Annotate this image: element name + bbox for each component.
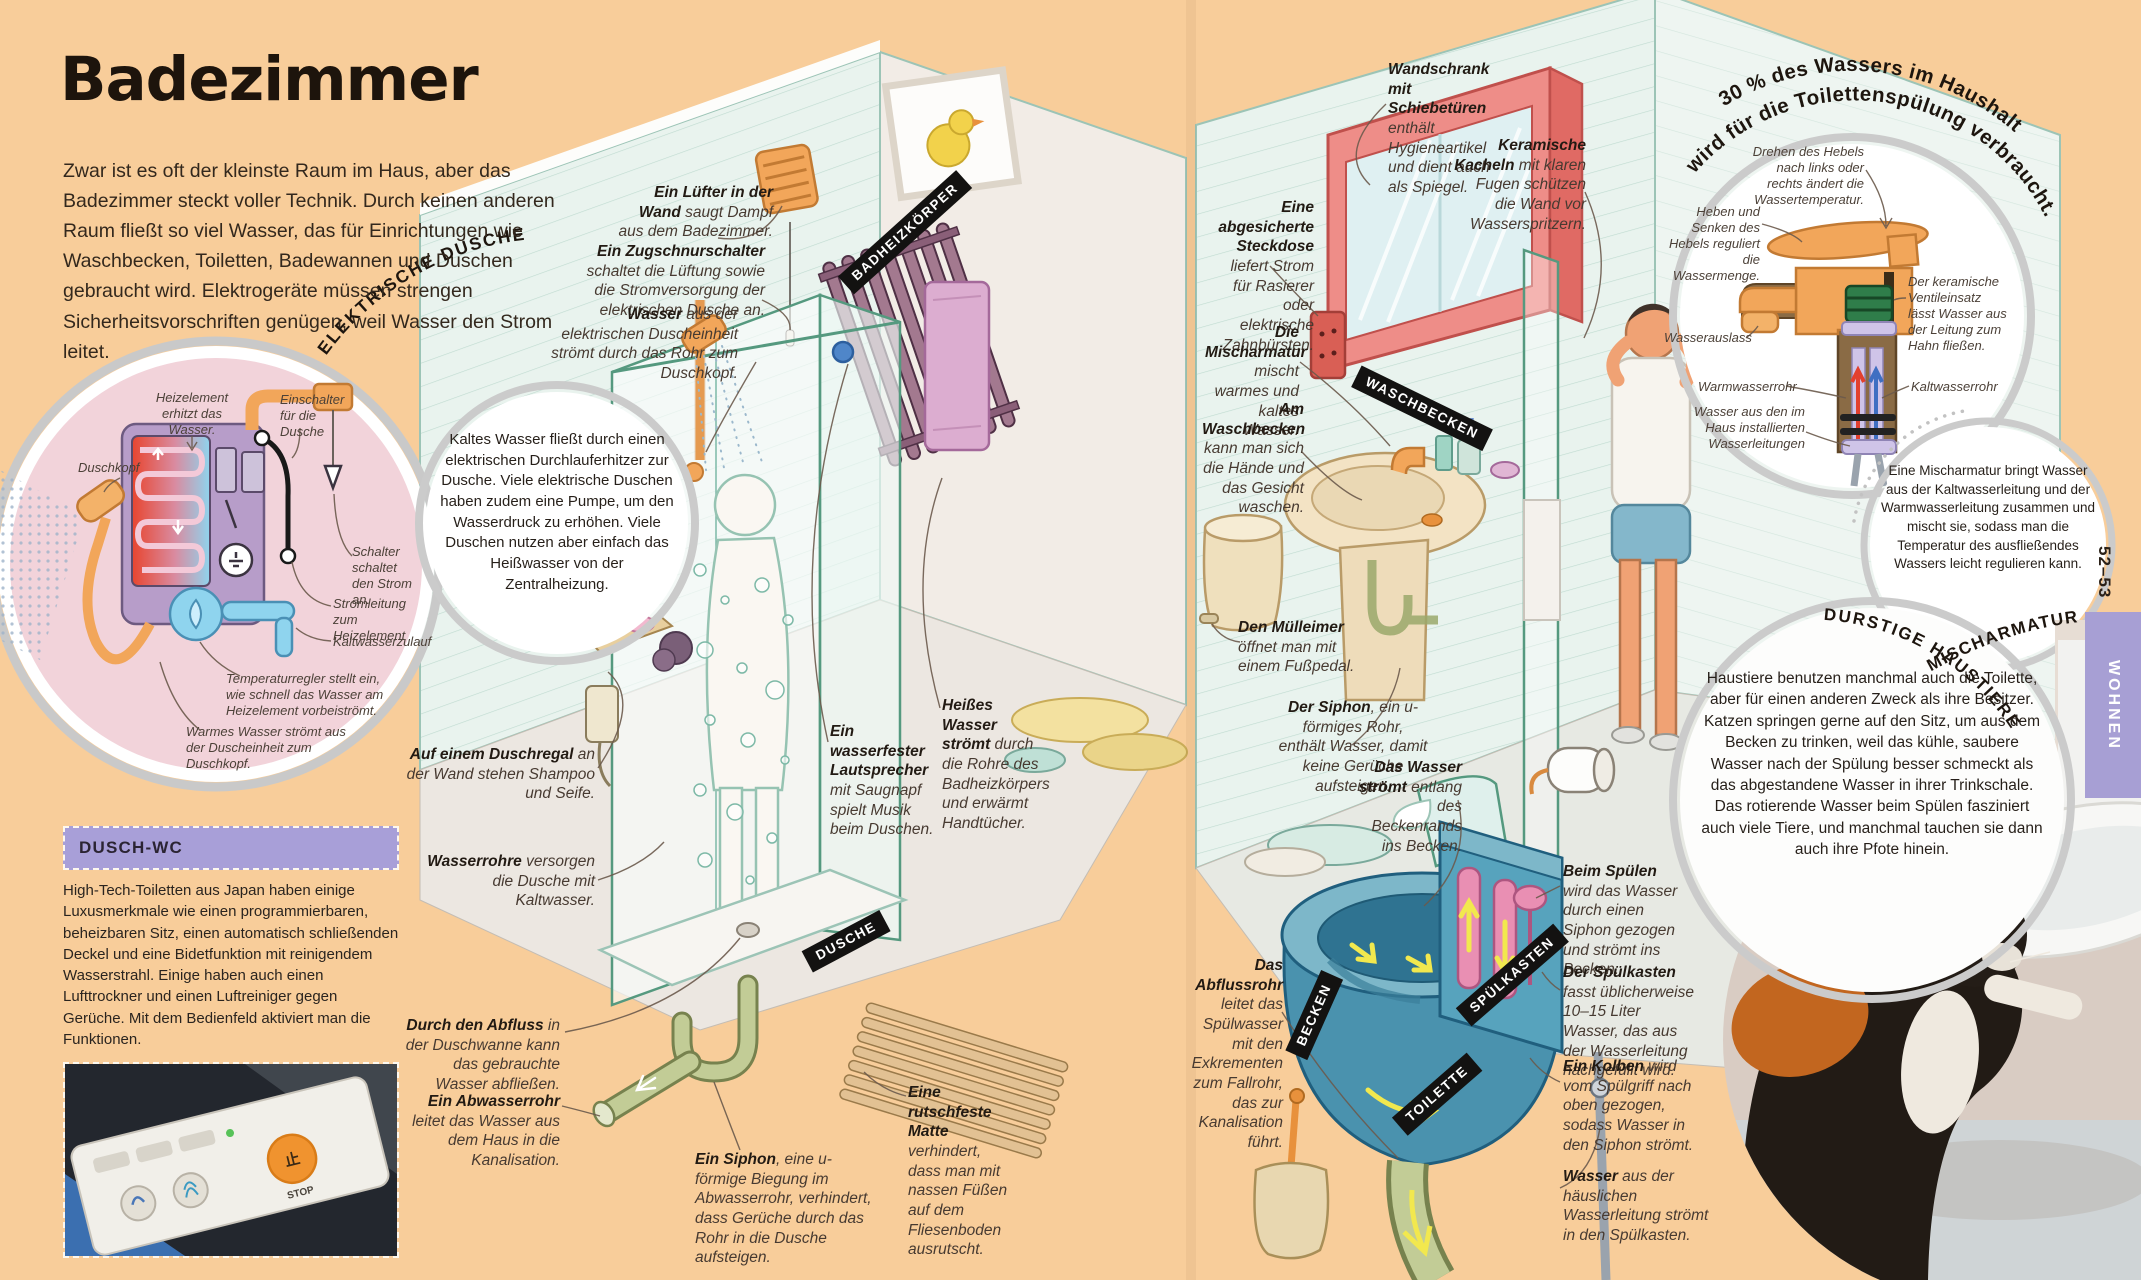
label-water-rim: Das Wasser strömt entlang des Beckenrand… <box>1352 758 1462 856</box>
label-toilet-waste-pipe: Das Abflussrohr leitet das Spülwasser mi… <box>1183 956 1283 1153</box>
label-wall-fan: Ein Lüfter in der Wand saugt Dampf aus d… <box>618 183 773 242</box>
label-piston: Ein Kolben wird vom Spülgriff nach oben … <box>1563 1057 1695 1155</box>
label-water-pipes: Wasserrohre versorgen die Dusche mit Kal… <box>420 852 595 911</box>
label-ceramic-valve: Der keramische Ventileinsatz lässt Wasse… <box>1908 274 2010 355</box>
label-temperature-regulator: Temperaturregler stellt ein, wie schnell… <box>226 671 386 719</box>
label-heating-element: Heizelement erhitzt das Wasser. <box>150 390 234 438</box>
mixer-bubble-text: Eine Mischarmatur bringt Wasser aus der … <box>1880 462 2096 574</box>
label-waste-pipe: Ein Abwasserrohr leitet das Wasser aus d… <box>398 1092 560 1171</box>
label-showerhead: Duschkopf <box>78 460 150 476</box>
toilet-control-panel-photo: 止 STOP <box>63 1062 399 1258</box>
label-cold-water-pipe: Kaltwasserrohr <box>1911 379 1995 395</box>
book-spread: 30 % des Wassers im Haushalt wird für di… <box>0 0 2141 1280</box>
intro-paragraph: Zwar ist es oft der kleinste Raum im Hau… <box>63 156 583 368</box>
label-lever-lift: Heben und Senken des Hebels reguliert di… <box>1666 204 1760 285</box>
section-tab-label: WOHNEN <box>2104 660 2122 751</box>
label-shower-switch: Einschalter für die Dusche <box>280 392 350 440</box>
label-ceramic-tiles: Keramische Kacheln mit klaren Fugen schü… <box>1452 136 1586 234</box>
waterproof-speaker-icon <box>833 342 853 362</box>
label-shower-shelf: Auf einem Duschregal an der Wand stehen … <box>395 745 595 804</box>
label-waterproof-speaker: Ein wasserfester Lautsprecher mit Saugna… <box>830 722 940 840</box>
label-shower-drain: Durch den Abfluss in der Duschwanne kann… <box>400 1016 560 1095</box>
label-radiator-hot-water: Heißes Wasser strömt durch die Rohre des… <box>942 696 1040 834</box>
pets-bubble-text: Haustiere benutzen manchmal auch die Toi… <box>1697 668 2047 860</box>
page-number: 52–53 <box>2094 546 2114 598</box>
dusch-wc-body: High-Tech-Toiletten aus Japan haben eini… <box>63 880 399 1050</box>
label-house-water-supply: Wasser aus den im Haus installierten Was… <box>1683 404 1805 452</box>
glass-partition <box>1524 250 1560 918</box>
label-lever-turn: Drehen des Hebels nach links oder rechts… <box>1750 144 1864 208</box>
safety-socket-icon <box>1311 312 1345 378</box>
label-water-outlet: Wasserauslass <box>1664 330 1744 346</box>
label-pedal-bin: Den Mülleimer öffnet man mit einem Fußpe… <box>1238 618 1356 677</box>
label-water-supply: Wasser aus der häuslichen Wasserleitung … <box>1563 1167 1715 1246</box>
dusch-wc-heading: DUSCH-WC <box>63 826 399 870</box>
pedal-bin <box>1200 515 1282 630</box>
label-warm-water-out: Warmes Wasser strömt aus der Duscheinhei… <box>186 724 361 772</box>
label-shower-siphon: Ein Siphon, eine u-förmige Biegung im Ab… <box>695 1150 873 1268</box>
label-water-from-shower-unit: Wasser aus der elektrischen Duscheinheit… <box>548 305 738 384</box>
label-washbasin: Am Waschbecken kann man sich die Hände u… <box>1202 400 1304 518</box>
dusch-wc-box: DUSCH-WC High-Tech-Toiletten aus Japan h… <box>63 826 399 1258</box>
section-tab-wohnen: WOHNEN <box>2085 612 2141 798</box>
label-cold-water-inlet: Kaltwasserzulauf <box>333 634 433 650</box>
label-hot-water-pipe: Warmwasserrohr <box>1698 379 1786 395</box>
electric-bubble-text: Kaltes Wasser fließt durch einen elektri… <box>437 430 677 596</box>
label-non-slip-mat: Eine rutschfeste Matte verhindert, dass … <box>908 1083 1016 1260</box>
page-title: Badezimmer <box>60 44 478 115</box>
